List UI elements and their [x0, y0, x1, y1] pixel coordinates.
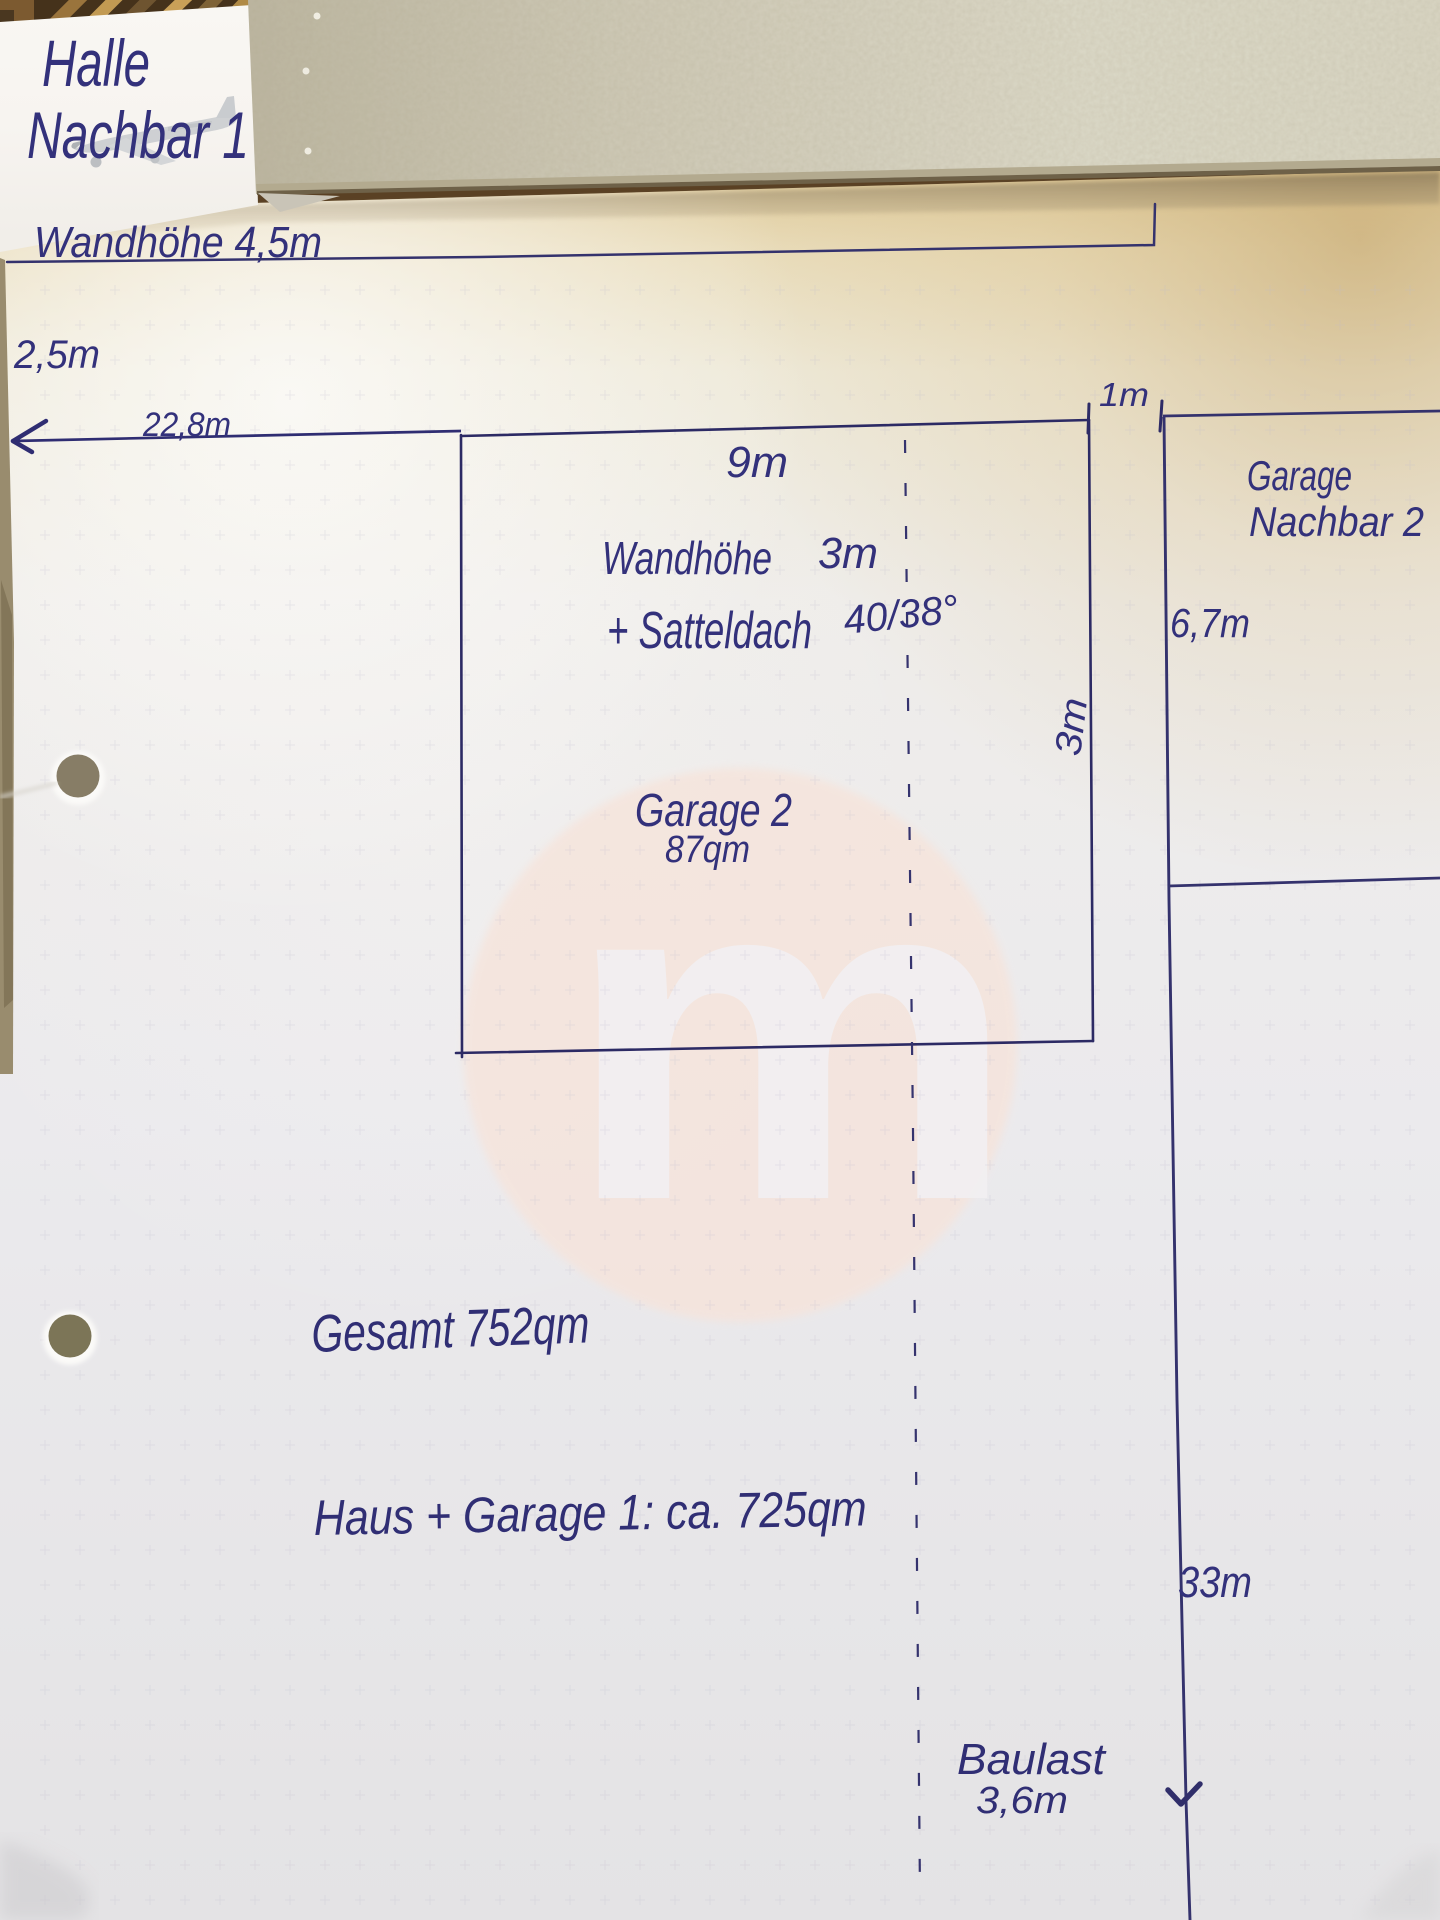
svg-text:Nachbar 1: Nachbar 1 — [27, 98, 249, 172]
svg-text:Baulast: Baulast — [957, 1735, 1107, 1784]
svg-text:6,7m: 6,7m — [1170, 600, 1250, 646]
svg-text:Garage: Garage — [1247, 452, 1352, 499]
svg-text:9m: 9m — [726, 438, 788, 487]
svg-text:Nachbar 2: Nachbar 2 — [1249, 498, 1424, 545]
svg-text:33m: 33m — [1178, 1558, 1252, 1607]
svg-text:Haus + Garage 1: ca. 725qm: Haus + Garage 1: ca. 725qm — [313, 1480, 867, 1546]
svg-text:2,5m: 2,5m — [13, 333, 100, 377]
svg-text:Gesamt 752qm: Gesamt 752qm — [310, 1295, 590, 1364]
svg-text:3m: 3m — [1047, 695, 1095, 758]
svg-text:Halle: Halle — [42, 26, 150, 100]
svg-text:3,6m: 3,6m — [976, 1780, 1068, 1822]
svg-text:Wandhöhe: Wandhöhe — [602, 532, 772, 584]
svg-text:3m: 3m — [818, 529, 878, 578]
svg-text:+ Satteldach: + Satteldach — [607, 602, 812, 660]
svg-text:1m: 1m — [1099, 376, 1149, 413]
svg-text:22,8m: 22,8m — [142, 406, 231, 444]
svg-text:87qm: 87qm — [665, 829, 750, 871]
